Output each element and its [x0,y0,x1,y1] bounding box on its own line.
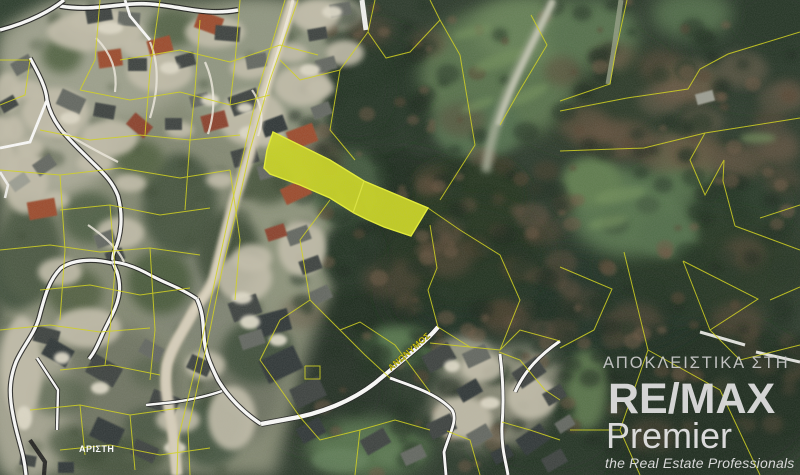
svg-text:Premier: Premier [606,415,732,456]
svg-text:the Real Estate Professionals: the Real Estate Professionals [605,455,794,471]
svg-text:ΑΠΟΚΛΕΙΣΤΙΚΑ ΣΤΗ: ΑΠΟΚΛΕΙΣΤΙΚΑ ΣΤΗ [603,354,790,372]
